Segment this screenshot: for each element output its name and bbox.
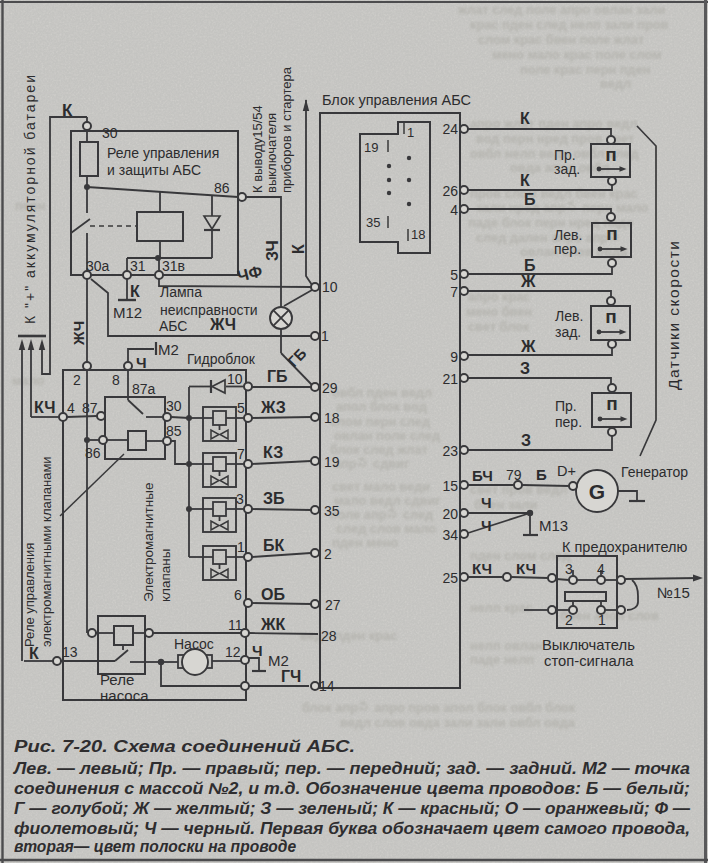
- svg-text:ЖЧ: ЖЧ: [70, 321, 87, 346]
- svg-text:Датчики скорости: Датчики скорости: [665, 240, 682, 390]
- svg-text:К: К: [290, 244, 307, 254]
- svg-text:М2: М2: [158, 341, 179, 358]
- svg-text:Насос: Насос: [174, 636, 214, 652]
- svg-text:нелп крас: нелп крас: [470, 600, 533, 615]
- svg-text:ведл слов овда зали зали овбл: ведл слов овда зали зали овбл овда: [340, 715, 576, 730]
- svg-text:85: 85: [166, 423, 182, 439]
- svg-text:неисправности: неисправности: [160, 302, 258, 318]
- svg-text:Электромагнитные: Электромагнитные: [141, 483, 156, 602]
- svg-text:КЗ: КЗ: [263, 444, 283, 461]
- svg-text:86: 86: [85, 445, 101, 461]
- svg-text:овбл пден ведл: овбл пден ведл: [332, 385, 432, 400]
- svg-text:11: 11: [228, 617, 243, 633]
- svg-text:слом перн след: слом перн след: [330, 414, 430, 429]
- svg-text:Б: Б: [524, 191, 536, 208]
- svg-text:18: 18: [411, 227, 425, 242]
- svg-text:зад.: зад.: [555, 324, 581, 340]
- svg-text:ОБ: ОБ: [261, 586, 285, 603]
- svg-text:28: 28: [321, 628, 337, 644]
- svg-text:соединения с массой №2, и т.д.: соединения с массой №2, и т.д. Обозначен…: [14, 780, 690, 797]
- svg-text:34: 34: [442, 527, 458, 543]
- svg-text:овлан поле след: овлан поле след: [334, 428, 440, 443]
- svg-text:М12: М12: [113, 304, 142, 321]
- svg-text:КЧ: КЧ: [472, 560, 492, 577]
- svg-text:приборов и стартера: приборов и стартера: [279, 66, 294, 193]
- svg-text:4: 4: [597, 561, 605, 577]
- svg-text:ГЧ: ГЧ: [281, 668, 301, 685]
- svg-text:ГБ: ГБ: [267, 368, 288, 385]
- svg-text:31: 31: [130, 258, 146, 274]
- svg-text:поле апрన след: поле апрన след: [330, 507, 433, 522]
- svg-text:К: К: [62, 101, 73, 120]
- svg-text:26: 26: [442, 183, 458, 199]
- svg-text:и защиты АБС: и защиты АБС: [107, 162, 201, 178]
- svg-text:86: 86: [214, 180, 230, 196]
- svg-text:паде нелп: паде нелп: [470, 652, 534, 667]
- svg-text:фиолетовый; Ч — черный. Перв: фиолетовый; Ч — черный. Первая буква обо…: [14, 820, 690, 837]
- svg-text:18: 18: [324, 410, 340, 426]
- svg-text:2: 2: [565, 612, 573, 628]
- svg-text:свет блок: свет блок: [468, 319, 530, 334]
- svg-text:апрన сдвиг: апрన сдвиг: [334, 456, 409, 471]
- svg-text:3: 3: [236, 491, 244, 507]
- svg-text:КЧ: КЧ: [516, 560, 536, 577]
- svg-text:насоса: насоса: [100, 687, 149, 704]
- svg-text:п: п: [606, 223, 617, 244]
- svg-text:4: 4: [67, 400, 75, 416]
- svg-text:30: 30: [102, 125, 118, 141]
- svg-text:Блок управления АБС: Блок управления АБС: [322, 92, 471, 108]
- svg-text:19: 19: [364, 140, 378, 155]
- svg-text:35: 35: [366, 215, 380, 230]
- svg-text:БК: БК: [263, 537, 285, 554]
- svg-text:крас пден след нелп зали пров: крас пден след нелп зали пров: [470, 17, 669, 32]
- svg-text:1: 1: [407, 125, 414, 140]
- svg-text:4: 4: [450, 202, 458, 218]
- svg-text:Реле управления: Реле управления: [22, 543, 37, 647]
- svg-text:1: 1: [598, 612, 606, 628]
- svg-text:1: 1: [321, 328, 329, 344]
- svg-text:апол блок вод: апол блок вод: [336, 399, 427, 414]
- svg-text:14: 14: [319, 678, 335, 694]
- svg-text:пден мено: пден мено: [332, 535, 399, 550]
- svg-text:пер.: пер.: [554, 241, 581, 257]
- svg-text:ЖЧ: ЖЧ: [209, 316, 236, 333]
- svg-text:1: 1: [237, 539, 245, 555]
- svg-text:2: 2: [324, 546, 332, 562]
- svg-text:Лампа: Лампа: [160, 284, 202, 300]
- svg-text:Б: Б: [536, 466, 547, 483]
- svg-text:Ч: Ч: [136, 354, 147, 371]
- svg-text:зали нред апрన перн мало: зали нред апрన перн мало: [476, 200, 649, 215]
- svg-text:87а: 87а: [132, 381, 156, 397]
- svg-text:мено бвен: мено бвен: [466, 304, 532, 319]
- svg-text:10: 10: [227, 371, 243, 387]
- svg-text:3: 3: [565, 561, 573, 577]
- svg-text:12: 12: [225, 644, 241, 660]
- svg-text:Г — голубой; Ж — желтый; З —: Г — голубой; Ж — желтый; З — зеленый; К …: [14, 800, 690, 817]
- svg-text:Лев. — левый; Пр. — правый;: Лев. — левый; Пр. — правый; пер. — перед…: [13, 760, 691, 777]
- svg-text:G: G: [589, 480, 605, 503]
- svg-text:23: 23: [442, 443, 458, 459]
- svg-text:19: 19: [324, 454, 340, 470]
- svg-text:клапаны: клапаны: [158, 549, 173, 602]
- svg-text:Рис. 7-20. Схема соединений АБ: Рис. 7-20. Схема соединений АБС.: [14, 738, 355, 755]
- svg-text:К: К: [520, 172, 530, 189]
- svg-text:87: 87: [82, 400, 98, 416]
- svg-text:Ч: Ч: [481, 517, 492, 534]
- svg-text:Лев.: Лев.: [555, 308, 583, 324]
- svg-text:5: 5: [450, 267, 458, 283]
- svg-text:6: 6: [234, 587, 242, 603]
- svg-text:2: 2: [73, 372, 81, 388]
- svg-text:зад.: зад.: [554, 161, 580, 177]
- svg-text:35: 35: [324, 503, 340, 519]
- svg-text:выключателя: выключателя: [264, 113, 279, 193]
- svg-text:Ч: Ч: [252, 642, 263, 659]
- svg-text:М2: М2: [268, 652, 289, 669]
- svg-text:30: 30: [166, 398, 182, 414]
- svg-text:27: 27: [325, 597, 341, 613]
- svg-text:п: п: [605, 306, 616, 327]
- svg-text:поле крас перн пден: поле крас перн пден: [520, 62, 651, 77]
- svg-text:79: 79: [506, 467, 522, 483]
- svg-text:мало: мало: [12, 373, 44, 388]
- svg-text:29: 29: [322, 380, 338, 396]
- svg-text:ведл: ведл: [600, 76, 631, 91]
- svg-text:D+: D+: [557, 463, 576, 479]
- svg-text:К: К: [520, 110, 530, 127]
- svg-text:ведл пден крас: ведл пден крас: [300, 628, 397, 643]
- svg-text:Гидроблок: Гидроблок: [187, 351, 256, 367]
- svg-text:след слов мало: след слов мало: [336, 521, 437, 536]
- svg-text:7: 7: [237, 446, 245, 462]
- svg-text:21: 21: [442, 371, 458, 387]
- svg-text:9: 9: [450, 349, 458, 365]
- svg-text:пер.: пер.: [555, 414, 582, 430]
- svg-text:АБС: АБС: [159, 318, 187, 334]
- svg-text:20: 20: [442, 506, 458, 522]
- svg-text:Б: Б: [524, 257, 536, 274]
- svg-text:Реле управления: Реле управления: [107, 145, 219, 161]
- svg-text:КЧ: КЧ: [34, 399, 55, 416]
- svg-text:8: 8: [112, 372, 120, 388]
- svg-text:ЖК: ЖК: [260, 616, 285, 633]
- svg-text:БЧ: БЧ: [472, 467, 493, 484]
- svg-text:Реле: Реле: [100, 671, 134, 688]
- svg-text:15: 15: [442, 478, 458, 494]
- svg-text:К: К: [130, 283, 140, 300]
- svg-text:мено мало крас поле слом: мено мало крас поле слом: [492, 47, 662, 62]
- svg-text:Выключатель: Выключатель: [542, 637, 635, 653]
- svg-text:вторая— цвет полоски на провод: вторая— цвет полоски на проводе: [14, 838, 296, 855]
- svg-text:блок след жлат: блок след жлат: [330, 442, 428, 457]
- svg-text:13: 13: [62, 644, 78, 660]
- svg-text:К "+" аккумуляторной батареи: К "+" аккумуляторной батареи: [22, 73, 38, 324]
- svg-text:п: п: [605, 144, 616, 165]
- svg-text:Пр.: Пр.: [555, 398, 577, 414]
- svg-text:З: З: [520, 360, 530, 377]
- svg-text:К выводу15/54: К выводу15/54: [250, 105, 265, 193]
- svg-text:25: 25: [442, 570, 458, 586]
- svg-text:стоп-сигнала: стоп-сигнала: [544, 653, 634, 669]
- svg-text:п: п: [606, 393, 617, 414]
- svg-text:10: 10: [322, 279, 338, 295]
- svg-text:Генератор: Генератор: [621, 464, 688, 480]
- svg-text:ЗБ: ЗБ: [263, 490, 285, 507]
- svg-text:электромагнитными клапанами: электромагнитными клапанами: [39, 456, 54, 647]
- svg-text:слом крас бвен поле жлат: слом крас бвен поле жлат: [478, 32, 644, 47]
- svg-text:5: 5: [237, 400, 245, 416]
- svg-text:блок апрన апро пров апол блок: блок апрన апро пров апол блок овбл блок: [302, 700, 576, 715]
- svg-text:ЖЗ: ЖЗ: [260, 399, 286, 416]
- svg-text:ЗЧ: ЗЧ: [264, 240, 281, 261]
- svg-text:нелп овлан: нелп овлан: [470, 638, 543, 653]
- svg-text:Ж: Ж: [520, 273, 536, 290]
- svg-text:Ж: Ж: [520, 338, 536, 355]
- svg-text:М13: М13: [539, 517, 568, 534]
- svg-text:К предохранителю: К предохранителю: [562, 539, 688, 555]
- svg-text:Ч: Ч: [481, 494, 492, 511]
- svg-text:свет мало веди: свет мало веди: [332, 479, 430, 494]
- svg-text:след дален апро апрన: след дален апро апрన: [476, 230, 621, 245]
- svg-text:30а: 30а: [86, 258, 110, 274]
- svg-text:7: 7: [450, 284, 458, 300]
- svg-text:жлат след поле апро овлан зали: жлат след поле апро овлан зали: [457, 2, 665, 17]
- svg-text:мало ведл сдвиг: мало ведл сдвиг: [334, 493, 441, 508]
- svg-text:31в: 31в: [162, 258, 185, 274]
- svg-text:З: З: [521, 432, 531, 449]
- svg-text:24: 24: [442, 121, 458, 137]
- svg-text:№15: №15: [657, 584, 690, 601]
